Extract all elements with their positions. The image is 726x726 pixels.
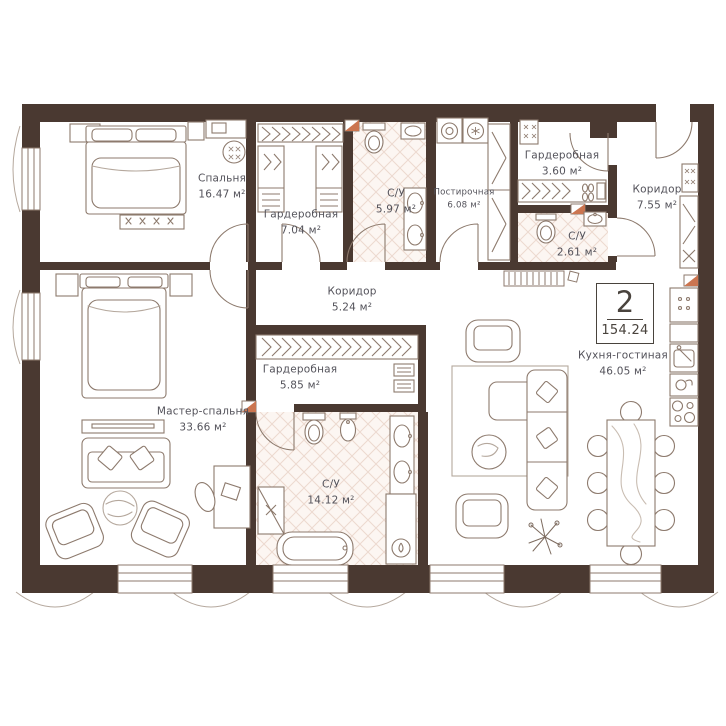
room-area: 5.85 м² bbox=[263, 378, 338, 394]
radiator-symbol bbox=[504, 271, 579, 286]
corridor1-furniture bbox=[680, 164, 698, 268]
shoe-box-symbol bbox=[520, 120, 538, 144]
bidet-symbol bbox=[340, 413, 356, 441]
room-area: 7.55 м² bbox=[632, 198, 681, 214]
room-label-kitchen-living: Кухня-гостиная 46.05 м² bbox=[578, 348, 668, 380]
room-name: Гардеробная bbox=[525, 148, 600, 164]
room-label-bedroom: Спальня 16.47 м² bbox=[198, 171, 246, 203]
wardrobe1-furniture bbox=[258, 124, 343, 212]
room-name: Гардеробная bbox=[263, 362, 338, 378]
kitchen-run-symbol bbox=[670, 288, 698, 426]
toilet-symbol bbox=[536, 214, 556, 243]
hanger-rail-symbol bbox=[258, 124, 343, 142]
desk-symbol bbox=[191, 466, 250, 528]
room-area: 14.12 м² bbox=[307, 493, 354, 509]
bed-symbol bbox=[86, 126, 186, 214]
floorplan-page: Спальня 16.47 м² Гардеробная 7.04 м² С/У… bbox=[0, 0, 726, 726]
shower-symbol bbox=[258, 487, 284, 534]
room-label-corridor-2: Коридор 5.24 м² bbox=[327, 284, 376, 316]
pouf-symbol bbox=[223, 141, 245, 163]
nightstand-symbol bbox=[188, 122, 204, 140]
room-label-wardrobe-3: Гардеробная 5.85 м² bbox=[263, 362, 338, 394]
armchair-symbol bbox=[456, 494, 508, 538]
room-name: Коридор bbox=[327, 284, 376, 300]
apartment-info-badge: 2 154.24 bbox=[596, 283, 654, 344]
stove-symbol bbox=[670, 398, 698, 426]
closet-column-symbol bbox=[316, 146, 342, 212]
tv-console-symbol bbox=[82, 420, 164, 433]
coffee-table-symbol bbox=[472, 435, 506, 469]
rug-symbol bbox=[103, 491, 137, 525]
room-area: 33.66 м² bbox=[157, 420, 249, 436]
nightstand-symbol bbox=[170, 274, 192, 296]
room-name: Спальня bbox=[198, 171, 246, 187]
linen-shelf-symbol bbox=[394, 364, 414, 392]
counter-symbol bbox=[670, 324, 698, 342]
room-area: 2.61 м² bbox=[557, 245, 597, 261]
room-name: Гардеробная bbox=[264, 207, 339, 223]
nightstand-symbol bbox=[56, 274, 78, 296]
sink-symbol bbox=[584, 212, 606, 226]
room-label-wardrobe-1: Гардеробная 7.04 м² bbox=[264, 207, 339, 239]
rooms-count: 2 bbox=[597, 287, 653, 317]
room-area: 5.24 м² bbox=[327, 300, 376, 316]
bathtub-symbol bbox=[277, 532, 353, 565]
room-area: 46.05 м² bbox=[578, 364, 668, 380]
faucet-unit-symbol bbox=[670, 374, 698, 396]
sink-symbol bbox=[401, 123, 425, 139]
room-area: 7.04 м² bbox=[264, 223, 339, 239]
kitchen-sink-symbol bbox=[670, 344, 698, 372]
boiler-niche-symbol bbox=[386, 494, 416, 564]
hall-wardrobe-symbol bbox=[680, 196, 698, 268]
room-area: 5.97 м² bbox=[376, 202, 416, 218]
dining-set-symbol bbox=[588, 402, 675, 565]
room-label-master-bedroom: Мастер-спальня 33.66 м² bbox=[157, 404, 249, 436]
room-label-laundry: Постирочная 6.08 м² bbox=[433, 187, 494, 214]
sofa-symbol bbox=[82, 438, 170, 488]
room-area: 16.47 м² bbox=[198, 187, 246, 203]
room-name: Кухня-гостиная bbox=[578, 348, 668, 364]
fridge-symbol bbox=[670, 288, 698, 322]
dryer-symbol bbox=[463, 118, 488, 143]
room-label-corridor-1: Коридор 7.55 м² bbox=[632, 182, 681, 214]
badge-divider bbox=[607, 319, 643, 320]
shoe-cabinet-symbol bbox=[682, 164, 698, 192]
room-name: С/У bbox=[557, 229, 597, 245]
armchair-symbol bbox=[128, 498, 192, 560]
bench-symbol bbox=[120, 215, 184, 229]
room-label-bathroom-1: С/У 5.97 м² bbox=[376, 186, 416, 218]
bed-symbol bbox=[80, 274, 168, 398]
closet-column-symbol bbox=[258, 146, 284, 212]
kitchen-living-furniture bbox=[452, 288, 698, 565]
toilet-symbol bbox=[363, 123, 385, 153]
armchair-symbol bbox=[43, 500, 107, 561]
double-washbasin-symbol bbox=[390, 416, 414, 494]
room-label-bathroom-3: С/У 14.12 м² bbox=[307, 477, 354, 509]
room-area: 6.08 м² bbox=[433, 200, 494, 213]
room-name: Постирочная bbox=[433, 187, 494, 200]
plant-symbol bbox=[529, 519, 562, 554]
room-name: Мастер-спальня bbox=[157, 404, 249, 420]
room-area: 3.60 м² bbox=[525, 164, 600, 180]
toilet-symbol bbox=[303, 413, 325, 444]
armchair-symbol bbox=[466, 320, 520, 362]
console-symbol bbox=[206, 120, 246, 138]
washer-symbol bbox=[437, 118, 462, 143]
room-label-bathroom-2: С/У 2.61 м² bbox=[557, 229, 597, 261]
room-name: С/У bbox=[376, 186, 416, 202]
room-name: С/У bbox=[307, 477, 354, 493]
room-name: Коридор bbox=[632, 182, 681, 198]
room-label-wardrobe-2: Гардеробная 3.60 м² bbox=[525, 148, 600, 180]
total-area: 154.24 bbox=[597, 323, 653, 338]
